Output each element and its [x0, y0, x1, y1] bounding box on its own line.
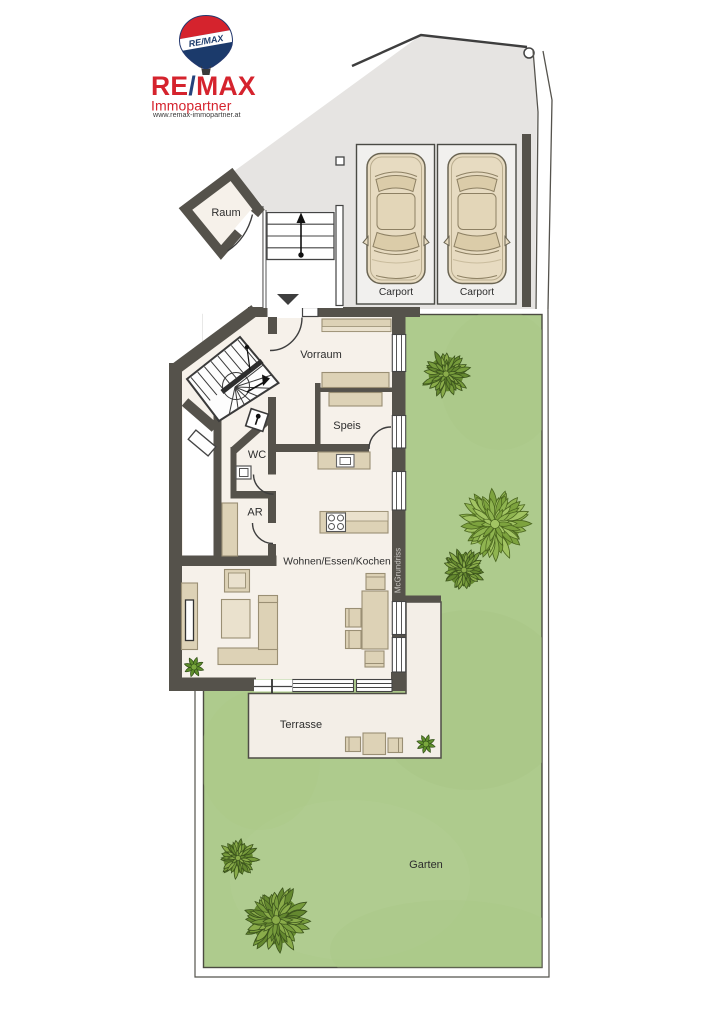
svg-text:Carport: Carport: [460, 287, 494, 298]
svg-text:McGrundriss: McGrundriss: [394, 548, 403, 593]
svg-text:WC: WC: [248, 449, 266, 461]
svg-text:Carport: Carport: [379, 287, 413, 298]
svg-text:RE/MAX: RE/MAX: [151, 71, 256, 101]
svg-text:Terrasse: Terrasse: [280, 719, 322, 731]
svg-text:www.remax-immopartner.at: www.remax-immopartner.at: [152, 110, 240, 119]
svg-text:Wohnen/Essen/Kochen: Wohnen/Essen/Kochen: [283, 557, 391, 568]
svg-text:Raum: Raum: [211, 207, 240, 219]
svg-text:Garten: Garten: [409, 859, 443, 871]
svg-text:Vorraum: Vorraum: [300, 349, 342, 361]
svg-text:AR: AR: [247, 507, 262, 519]
svg-text:Speis: Speis: [333, 420, 361, 432]
